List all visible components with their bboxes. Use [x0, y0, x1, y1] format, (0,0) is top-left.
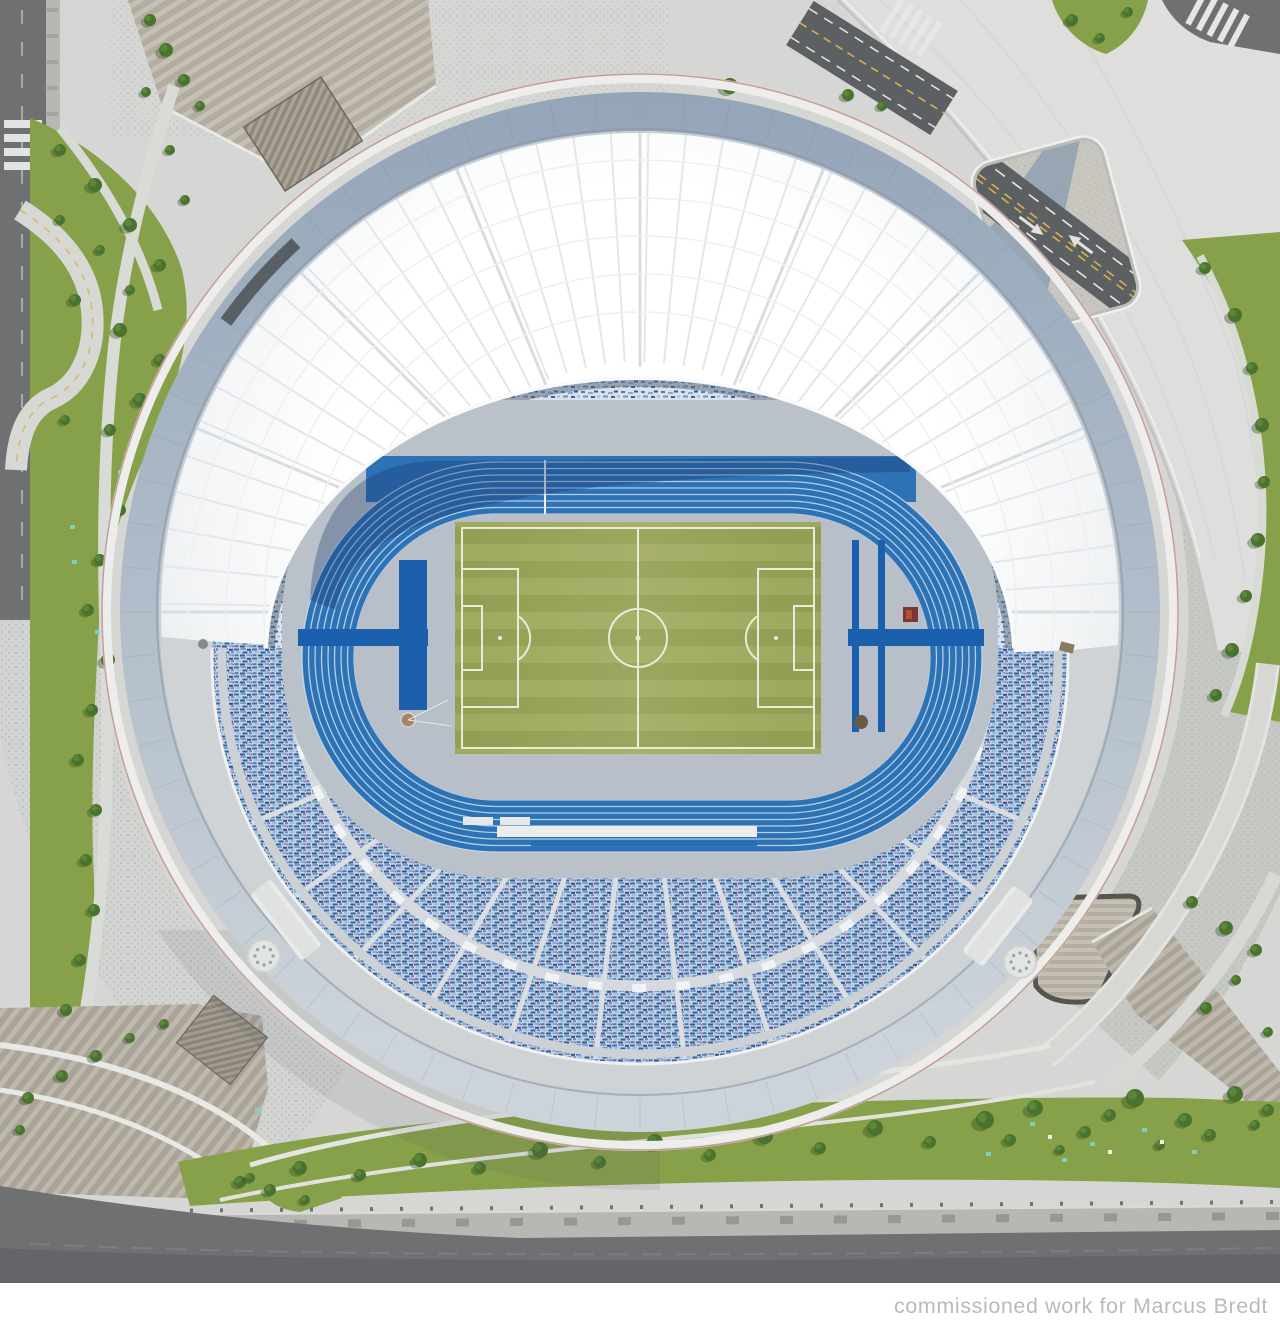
tree-highlight — [1187, 897, 1193, 903]
tree-highlight — [166, 146, 171, 151]
tree-highlight — [23, 1093, 29, 1099]
tree-highlight — [1263, 1105, 1269, 1111]
bench — [95, 630, 100, 634]
tree-highlight — [1256, 419, 1263, 426]
paver — [1050, 1214, 1063, 1222]
fence-post — [700, 1205, 703, 1209]
fence-post — [220, 1208, 223, 1212]
tree-highlight — [73, 755, 79, 761]
caption-text: commissioned work for Marcus Bredt — [894, 1296, 1280, 1318]
bolt — [1012, 967, 1015, 970]
stadium-aerial-photo — [0, 0, 1280, 1283]
fence-post — [250, 1208, 253, 1212]
tree-highlight — [96, 246, 101, 251]
fence-post — [430, 1207, 433, 1211]
tree-highlight — [1200, 263, 1206, 269]
paver — [1212, 1213, 1225, 1221]
fence-post — [400, 1207, 403, 1211]
paver — [402, 1219, 415, 1227]
tree-highlight — [355, 1170, 361, 1176]
paver — [996, 1214, 1009, 1222]
fence-post — [1270, 1200, 1273, 1204]
paver — [1104, 1213, 1117, 1221]
tree-highlight — [160, 44, 167, 51]
fence-post — [1210, 1201, 1213, 1205]
tree-highlight — [265, 1185, 271, 1191]
bolt — [1027, 960, 1030, 963]
tree-highlight — [1179, 1114, 1186, 1121]
bench — [1030, 1122, 1035, 1126]
bolt — [1012, 954, 1015, 957]
caption-bar: commissioned work for Marcus Bredt — [0, 1283, 1280, 1330]
stadium — [102, 74, 1178, 1150]
fence-post — [820, 1204, 823, 1208]
tree-highlight — [1080, 1127, 1086, 1133]
tree-highlight — [1229, 309, 1236, 316]
bolt — [269, 948, 272, 951]
tree-highlight — [414, 1154, 421, 1161]
tree-highlight — [1201, 1003, 1207, 1009]
paver — [348, 1219, 361, 1227]
bolt — [262, 945, 265, 948]
bench — [255, 1108, 260, 1112]
bolt — [1018, 951, 1021, 954]
tree-highlight — [1056, 1146, 1061, 1151]
tree-highlight — [1105, 1110, 1111, 1116]
paver — [888, 1215, 901, 1223]
bench — [1048, 1135, 1052, 1139]
fence-post — [790, 1204, 793, 1208]
fence-post — [370, 1207, 373, 1211]
bolt — [256, 948, 259, 951]
paver — [834, 1215, 847, 1223]
fence-post — [1120, 1201, 1123, 1205]
tree-highlight — [1252, 534, 1259, 541]
tree-highlight — [1205, 1130, 1211, 1136]
tree-highlight — [1124, 8, 1129, 13]
bolt — [262, 963, 265, 966]
tree-highlight — [246, 1174, 251, 1179]
tree-highlight — [145, 15, 151, 21]
tree-highlight — [91, 1051, 97, 1057]
tree-highlight — [1232, 976, 1237, 981]
tree-highlight — [56, 216, 61, 221]
fence-post — [850, 1203, 853, 1207]
fence-post — [310, 1208, 313, 1212]
bolt — [253, 954, 256, 957]
tree-highlight — [160, 1020, 165, 1025]
tree-highlight — [1251, 945, 1257, 951]
tree-highlight — [83, 605, 89, 611]
tree-highlight — [87, 705, 93, 711]
tree-highlight — [155, 355, 161, 361]
tree-highlight — [91, 805, 97, 811]
bench — [1192, 1150, 1197, 1154]
tree-highlight — [95, 555, 101, 561]
paver — [47, 86, 58, 90]
bench — [1062, 1158, 1067, 1162]
tree-highlight — [1264, 1028, 1269, 1033]
tree-highlight — [869, 1122, 877, 1130]
fence-post — [970, 1202, 973, 1206]
paver — [1158, 1213, 1171, 1221]
bolt — [1009, 960, 1012, 963]
fence-post — [1060, 1202, 1063, 1206]
bench — [70, 525, 75, 529]
fence-post — [940, 1203, 943, 1207]
tree-highlight — [70, 295, 76, 301]
tree-highlight — [81, 855, 87, 861]
paver — [47, 8, 58, 12]
page: commissioned work for Marcus Bredt — [0, 0, 1280, 1330]
tree-highlight — [16, 1126, 21, 1131]
tree-highlight — [843, 90, 849, 96]
paver — [618, 1217, 631, 1225]
tree-highlight — [878, 102, 883, 107]
tree-highlight — [1241, 591, 1247, 597]
bench — [1160, 1140, 1164, 1144]
tree-highlight — [1247, 363, 1253, 369]
fence-post — [1090, 1201, 1093, 1205]
paver — [47, 34, 58, 38]
fence-post — [670, 1205, 673, 1209]
tree-highlight — [105, 425, 111, 431]
fence-post — [1030, 1202, 1033, 1206]
tree-highlight — [978, 1113, 987, 1122]
bench — [1108, 1150, 1112, 1154]
tree-highlight — [1229, 1088, 1237, 1096]
tree-highlight — [55, 145, 61, 151]
tree-highlight — [179, 75, 185, 81]
bench — [1142, 1128, 1147, 1132]
fence-post — [490, 1206, 493, 1210]
tree-highlight — [114, 324, 121, 331]
tree-highlight — [1029, 1102, 1037, 1110]
fence-post — [1180, 1201, 1183, 1205]
bolt — [256, 961, 259, 964]
fence-post — [730, 1204, 733, 1208]
fence-post — [460, 1206, 463, 1210]
paver — [780, 1216, 793, 1224]
paver — [1266, 1212, 1279, 1220]
fence-post — [880, 1203, 883, 1207]
bench — [1090, 1142, 1095, 1146]
tree-highlight — [75, 955, 81, 961]
photo-canvas — [0, 0, 1280, 1283]
tree-highlight — [1005, 1135, 1011, 1141]
tree-highlight — [124, 219, 131, 226]
tree-highlight — [705, 1150, 711, 1156]
tree-highlight — [181, 196, 186, 201]
bolt — [271, 954, 274, 957]
tree-highlight — [142, 88, 147, 93]
tree-highlight — [1067, 15, 1073, 21]
paver — [47, 60, 58, 64]
paver — [47, 112, 58, 116]
tree-highlight — [126, 286, 131, 291]
fence-post — [610, 1205, 613, 1209]
tree-highlight — [1226, 644, 1233, 651]
fence-post — [520, 1206, 523, 1210]
tree-highlight — [1259, 477, 1265, 483]
fence-post — [640, 1205, 643, 1209]
tree-highlight — [89, 905, 95, 911]
fence-post — [580, 1205, 583, 1209]
fence-post — [340, 1207, 343, 1211]
tree-highlight — [1096, 34, 1101, 39]
paver — [456, 1218, 469, 1226]
tree-highlight — [134, 394, 141, 401]
tree-highlight — [1128, 1091, 1137, 1100]
fence-post — [760, 1204, 763, 1208]
tree-highlight — [235, 1177, 241, 1183]
tree-highlight — [1251, 1121, 1256, 1126]
tree-highlight — [925, 1137, 931, 1143]
bolt — [1025, 954, 1028, 957]
bench — [986, 1152, 991, 1156]
paver — [942, 1215, 955, 1223]
tree-highlight — [294, 1162, 301, 1169]
tree-highlight — [815, 1143, 821, 1149]
fence-post — [1000, 1202, 1003, 1206]
fence-post — [1240, 1200, 1243, 1204]
paver — [726, 1216, 739, 1224]
fence-post — [280, 1208, 283, 1212]
tree-highlight — [61, 1005, 67, 1011]
tree-highlight — [196, 102, 201, 107]
fence-post — [190, 1209, 193, 1213]
tree-highlight — [89, 179, 96, 186]
tree-highlight — [61, 416, 66, 421]
tree-highlight — [126, 1034, 131, 1039]
paver — [510, 1218, 523, 1226]
tree-highlight — [155, 260, 161, 266]
bolt — [269, 961, 272, 964]
tree-highlight — [301, 1196, 306, 1201]
fence-post — [910, 1203, 913, 1207]
fence-post — [550, 1206, 553, 1210]
tree-highlight — [57, 1071, 63, 1077]
tree-highlight — [1220, 922, 1227, 929]
paver — [672, 1217, 685, 1225]
bolt — [1018, 969, 1021, 972]
paver — [564, 1218, 577, 1226]
fence-post — [1150, 1201, 1153, 1205]
bolt — [1025, 967, 1028, 970]
tree-highlight — [1211, 690, 1217, 696]
bench — [72, 560, 77, 564]
roof-tip-west — [198, 639, 208, 649]
